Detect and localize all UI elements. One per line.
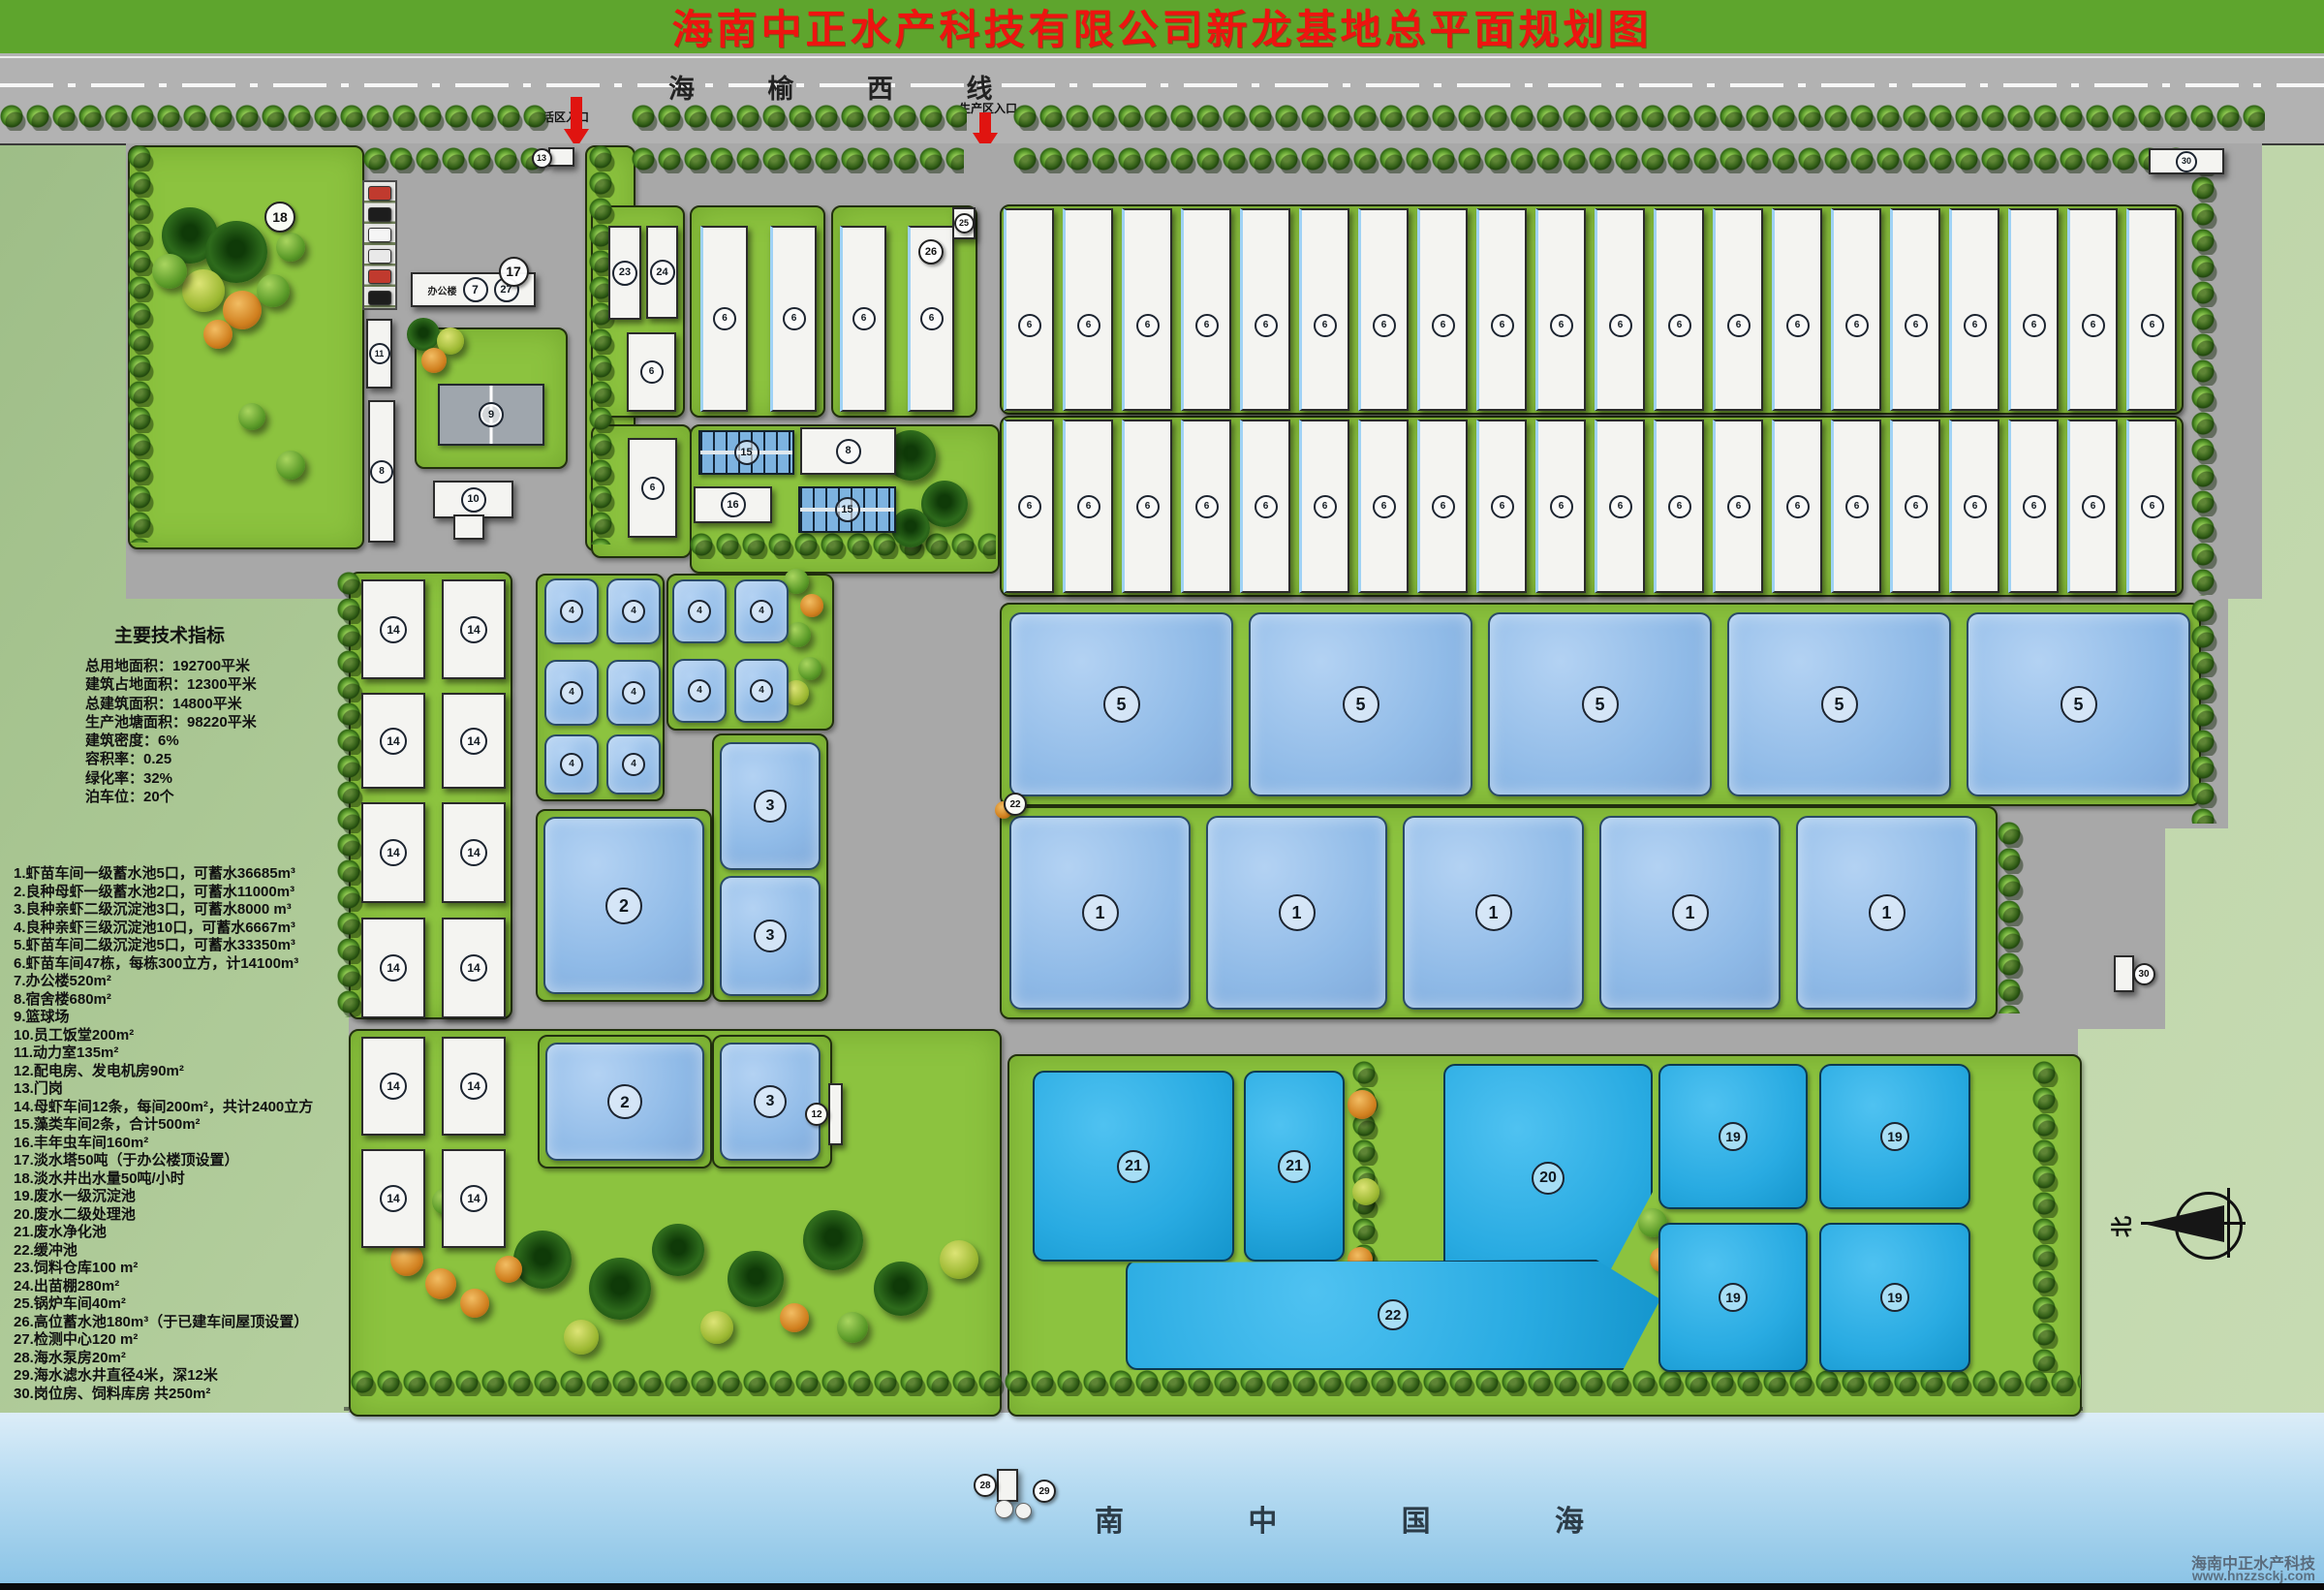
building-6: 6	[1004, 420, 1054, 593]
label-14: 14	[460, 839, 487, 866]
marker-29: 29	[1033, 1480, 1056, 1503]
label-6: 6	[1314, 314, 1337, 337]
legend-item: 17.淡水塔50吨（于办公楼顶设置）	[14, 1149, 313, 1168]
bush-tree-icon	[786, 622, 811, 647]
bush-tree-icon	[238, 403, 265, 430]
label-1: 1	[1475, 894, 1512, 931]
building-24: 24	[646, 226, 678, 319]
label-15: 15	[835, 497, 860, 522]
building-6: 6	[1240, 420, 1290, 593]
legend-list: 1.虾苗车间一级蓄水池5口，可蓄水36685m³2.良种母虾一级蓄水池2口，可蓄…	[14, 862, 313, 1400]
building-14: 14	[361, 1149, 425, 1248]
legend-item: 27.检测中心120 m²	[14, 1328, 313, 1347]
marker-12: 12	[805, 1103, 828, 1126]
palm-tree-icon	[589, 1258, 651, 1320]
legend-item: 25.锅炉车间40m²	[14, 1293, 313, 1311]
building-6: 6	[1654, 420, 1704, 593]
building-6: 6	[2126, 420, 2177, 593]
legend-item: 19.废水一级沉淀池	[14, 1185, 313, 1203]
label-6: 6	[1550, 495, 1573, 518]
title-bar: 海南中正水产科技有限公司新龙基地总平面规划图	[0, 0, 2324, 53]
label-14: 14	[460, 954, 487, 982]
label-6: 6	[1077, 495, 1100, 518]
label-4: 4	[622, 600, 645, 623]
tech-indicator-line: 总建筑面积：14800平米	[85, 693, 257, 711]
building-6: 6	[1772, 420, 1822, 593]
building-6: 6	[1595, 420, 1645, 593]
label-1: 1	[1672, 894, 1709, 931]
label-21: 21	[1278, 1150, 1311, 1183]
bush-tree-icon	[276, 233, 305, 262]
label-2: 2	[605, 888, 642, 924]
label-6: 6	[2023, 314, 2046, 337]
label-19: 19	[1719, 1122, 1748, 1151]
yellow-tree-icon	[700, 1311, 733, 1344]
label-11: 11	[369, 343, 390, 364]
building-6: 6	[1004, 208, 1054, 411]
building-6: 6	[1358, 420, 1409, 593]
label-6: 6	[1609, 314, 1632, 337]
block-row6-1	[1000, 204, 2184, 415]
label-4: 4	[560, 753, 583, 776]
label-6: 6	[1845, 314, 1869, 337]
pond-4: 4	[734, 659, 789, 723]
label-14: 14	[380, 954, 407, 982]
legend-item: 9.篮球场	[14, 1006, 313, 1024]
pond-4: 4	[606, 734, 661, 795]
building-11: 11	[366, 319, 392, 389]
pond-1: 1	[1599, 816, 1781, 1010]
yellow-tree-icon	[182, 269, 225, 312]
label-3: 3	[754, 790, 787, 823]
tree-col	[2191, 599, 2228, 824]
compass-north-label: 北	[2105, 1216, 2136, 1237]
label-14: 14	[460, 1185, 487, 1212]
label-3: 3	[754, 920, 787, 952]
office-label: 办公楼	[428, 283, 457, 297]
label-30: 30	[2176, 151, 2197, 172]
building-6: 6	[1299, 208, 1349, 411]
bush-tree-icon	[152, 254, 187, 289]
label-14: 14	[380, 728, 407, 755]
pond-19: 19	[1658, 1064, 1808, 1209]
legend-item: 21.废水净化池	[14, 1221, 313, 1239]
label-6: 6	[2023, 495, 2046, 518]
marker-26: 26	[918, 239, 944, 265]
building-6: 6	[770, 226, 817, 412]
label-14: 14	[380, 616, 407, 643]
legend-item: 14.母虾车间12条，每间200m²，共计2400立方	[14, 1096, 313, 1114]
orange-tree-icon	[495, 1256, 522, 1283]
label-3: 3	[754, 1085, 787, 1118]
legend-item: 18.淡水井出水量50吨/小时	[14, 1168, 313, 1186]
building-6: 6	[2008, 420, 2059, 593]
legend-item: 28.海水泵房20m²	[14, 1347, 313, 1365]
building-6: 6	[1535, 420, 1586, 593]
pump-house-28	[997, 1469, 1018, 1502]
building-6: 6	[1831, 208, 1881, 411]
label-6: 6	[1018, 495, 1041, 518]
label-6: 6	[2082, 495, 2105, 518]
pond-4: 4	[544, 578, 599, 644]
building-23: 23	[608, 226, 641, 320]
label-6: 6	[1491, 314, 1514, 337]
pond-19: 19	[1819, 1223, 1970, 1372]
label-6: 6	[1432, 314, 1455, 337]
label-15: 15	[734, 440, 759, 465]
pond-5: 5	[1488, 612, 1712, 796]
pond-5: 5	[1249, 612, 1472, 796]
legend-item: 5.虾苗车间二级沉淀池5口，可蓄水33350m³	[14, 934, 313, 952]
parked-car	[368, 207, 391, 222]
label-6: 6	[1195, 495, 1219, 518]
label-20: 20	[1532, 1162, 1565, 1195]
building-6: 6	[1949, 208, 1999, 411]
tech-indicator-line: 容积率：0.25	[85, 748, 257, 766]
pond-4: 4	[544, 734, 599, 795]
building-30: 30	[2149, 148, 2224, 174]
label-6: 6	[1550, 314, 1573, 337]
orange-tree-icon	[800, 594, 823, 617]
palm-tree-icon	[874, 1262, 928, 1316]
orange-tree-icon	[780, 1303, 809, 1332]
legend-item: 26.高位蓄水池180m³（于已建车间屋顶设置）	[14, 1311, 313, 1329]
legend-item: 15.藻类车间2条，合计500m²	[14, 1113, 313, 1132]
pond-2: 2	[543, 817, 704, 994]
label-6: 6	[1255, 495, 1278, 518]
building-6: 6	[840, 226, 886, 412]
yellow-tree-icon	[564, 1320, 599, 1355]
marker-22: 22	[1004, 793, 1027, 816]
pond-3: 3	[720, 742, 821, 870]
pond-4: 4	[734, 579, 789, 643]
legend-item: 8.宿舍楼680m²	[14, 988, 313, 1007]
legend-item: 23.饲料仓库100 m²	[14, 1257, 313, 1275]
legend-item: 1.虾苗车间一级蓄水池5口，可蓄水36685m³	[14, 862, 313, 881]
building-6: 6	[1181, 420, 1231, 593]
building-6: 6	[1713, 420, 1763, 593]
legend-item: 22.缓冲池	[14, 1239, 313, 1258]
highway-edge-line	[0, 56, 2324, 58]
palm-tree-icon	[513, 1231, 572, 1289]
pond-4: 4	[672, 659, 727, 723]
label-6: 6	[1373, 314, 1396, 337]
palm-tree-icon	[407, 318, 440, 351]
building-6: 6	[2008, 208, 2059, 411]
building-6: 6	[1122, 208, 1172, 411]
label-6: 6	[641, 477, 665, 500]
label-5: 5	[1821, 686, 1858, 723]
label-10: 10	[461, 487, 486, 513]
legend-item: 30.岗位房、饲料库房 共250m²	[14, 1383, 313, 1401]
orange-tree-icon	[203, 320, 232, 349]
label-8: 8	[836, 439, 861, 464]
building-6: 6	[2067, 208, 2118, 411]
compass-vertical-line	[2227, 1188, 2230, 1258]
label-9: 9	[479, 402, 504, 427]
label-21: 21	[1117, 1150, 1150, 1183]
company-website: www.hnzzsckj.com	[2170, 1568, 2315, 1583]
highway-center-line	[0, 83, 2324, 87]
building-6: 6	[1476, 208, 1527, 411]
yellow-tree-icon	[1352, 1178, 1379, 1205]
label-5: 5	[2061, 686, 2097, 723]
living-entrance-arrow	[571, 97, 582, 130]
legend-item: 7.办公楼520m²	[14, 970, 313, 988]
label-19: 19	[1719, 1283, 1748, 1312]
palm-tree-icon	[652, 1224, 704, 1276]
building-6: 6	[1890, 208, 1940, 411]
building-6: 6	[1949, 420, 1999, 593]
building-10: 10	[433, 481, 513, 518]
label-6: 6	[2082, 314, 2105, 337]
legend-item: 3.良种亲虾二级沉淀池3口，可蓄水8000 m³	[14, 898, 313, 917]
algae-workshop-15: 15	[798, 486, 896, 533]
building-6: 6	[1181, 208, 1231, 411]
production-entrance-arrow	[979, 112, 991, 134]
label-16: 16	[721, 492, 746, 517]
tech-indicator-line: 绿化率：32%	[85, 767, 257, 786]
label-6: 6	[1373, 495, 1396, 518]
building-6: 6	[1772, 208, 1822, 411]
tech-indicator-line: 建筑占地面积：12300平米	[85, 673, 257, 692]
building-6: 6	[628, 438, 677, 538]
label-23: 23	[612, 261, 637, 286]
label-4: 4	[622, 753, 645, 776]
marker-13: 13	[532, 148, 552, 169]
site-plan-canvas: 海南中正水产科技有限公司新龙基地总平面规划图 海 榆 西 线 生活区入口 生产区…	[0, 0, 2324, 1590]
building-14: 14	[442, 1149, 506, 1248]
orange-tree-icon	[390, 1243, 423, 1276]
parked-car	[368, 291, 391, 305]
legend-item: 6.虾苗车间47栋，每栋300立方，计14100m³	[14, 952, 313, 971]
building-14: 14	[442, 802, 506, 903]
label-19: 19	[1880, 1122, 1909, 1151]
bush-tree-icon	[276, 451, 305, 480]
building-6: 6	[1476, 420, 1527, 593]
page-title: 海南中正水产科技有限公司新龙基地总平面规划图	[671, 0, 1652, 56]
pond-21: 21	[1244, 1071, 1345, 1262]
building-14: 14	[361, 1037, 425, 1136]
tree-col	[1998, 822, 2034, 1013]
label-1: 1	[1279, 894, 1316, 931]
orange-tree-icon	[425, 1268, 456, 1299]
building-14: 14	[361, 918, 425, 1018]
building-6: 6	[1240, 208, 1290, 411]
gate-house-13	[548, 147, 574, 167]
label-14: 14	[380, 1185, 407, 1212]
bush-tree-icon	[837, 1312, 868, 1343]
tree-row	[1013, 105, 2265, 143]
tree-col	[2191, 150, 2228, 596]
pond-4: 4	[606, 578, 661, 644]
palm-tree-icon	[803, 1210, 863, 1270]
building-6: 6	[1595, 208, 1645, 411]
tree-row	[0, 105, 550, 143]
tree-row	[632, 147, 964, 186]
label-6: 6	[1609, 495, 1632, 518]
label-6: 6	[1136, 314, 1160, 337]
sea-name: 南 中 国 海	[1095, 1497, 1642, 1540]
marker-17: 17	[499, 257, 529, 287]
label-8: 8	[370, 460, 393, 483]
label-14: 14	[460, 616, 487, 643]
label-6: 6	[1314, 495, 1337, 518]
label-1: 1	[1082, 894, 1119, 931]
building-6: 6	[1535, 208, 1586, 411]
orange-tree-icon	[460, 1289, 489, 1318]
label-6: 6	[1668, 314, 1691, 337]
label-6: 6	[1255, 314, 1278, 337]
label-6: 6	[1786, 314, 1810, 337]
bush-tree-icon	[257, 274, 290, 307]
legend-item: 16.丰年虫车间160m²	[14, 1132, 313, 1150]
label-4: 4	[560, 600, 583, 623]
label-6: 6	[1964, 495, 1987, 518]
legend-item: 2.良种母虾一级蓄水池2口，可蓄水11000m³	[14, 881, 313, 899]
label-5: 5	[1343, 686, 1379, 723]
label-4: 4	[688, 600, 711, 623]
bush-tree-icon	[798, 657, 821, 680]
building-6: 6	[1063, 420, 1113, 593]
legend-item: 10.员工饭堂200m²	[14, 1024, 313, 1043]
building-6: 6	[1299, 420, 1349, 593]
algae-workshop-15: 15	[698, 430, 794, 475]
marker-25: 25	[954, 213, 975, 234]
yellow-tree-icon	[940, 1240, 978, 1279]
palm-tree-icon	[891, 509, 930, 547]
building-6: 6	[1417, 420, 1468, 593]
tech-indicator-line: 总用地面积：192700平米	[85, 655, 257, 673]
pond-3: 3	[720, 876, 821, 996]
filter-well-29	[995, 1500, 1013, 1518]
pond-19: 19	[1819, 1064, 1970, 1209]
label-5: 5	[1582, 686, 1619, 723]
parked-car	[368, 249, 391, 264]
label-6: 6	[1195, 314, 1219, 337]
tree-row	[632, 105, 967, 143]
label-6: 6	[852, 307, 876, 330]
pond-1: 1	[1403, 816, 1584, 1010]
building-6: 6	[1654, 208, 1704, 411]
building-14: 14	[442, 918, 506, 1018]
tech-indicators-heading: 主要技术指标	[114, 621, 225, 647]
block-row6-2	[1000, 416, 2184, 597]
tree-col	[337, 572, 364, 1017]
label-6: 6	[1786, 495, 1810, 518]
tree-col	[589, 145, 628, 545]
pond-4: 4	[606, 660, 661, 726]
building-6: 6	[2067, 420, 2118, 593]
legend-item: 12.配电房、发电机房90m²	[14, 1060, 313, 1078]
parked-car	[368, 228, 391, 242]
marker-28: 28	[974, 1474, 997, 1497]
label-14: 14	[460, 1073, 487, 1100]
tree-col	[2032, 1061, 2071, 1373]
label-6: 6	[1432, 495, 1455, 518]
label-6: 6	[1964, 314, 1987, 337]
label-6: 6	[2141, 314, 2164, 337]
label-6: 6	[1136, 495, 1160, 518]
label-6: 6	[783, 307, 806, 330]
label-1: 1	[1869, 894, 1906, 931]
label-6: 6	[640, 360, 664, 384]
pond-2: 2	[545, 1043, 704, 1161]
pond-5: 5	[1967, 612, 2190, 796]
building-6: 6	[627, 332, 676, 412]
building-6: 6	[1713, 208, 1763, 411]
label-5: 5	[1103, 686, 1140, 723]
building-6: 6	[1358, 208, 1409, 411]
marker-30: 30	[2133, 963, 2155, 985]
label-4: 4	[622, 681, 645, 704]
building-6: 6	[1417, 208, 1468, 411]
label-24: 24	[650, 260, 675, 285]
building-16: 16	[694, 486, 772, 523]
pond-4: 4	[544, 660, 599, 726]
label-6: 6	[1727, 314, 1751, 337]
pond-19: 19	[1658, 1223, 1808, 1372]
label-14: 14	[380, 839, 407, 866]
label-6: 6	[1018, 314, 1041, 337]
building-6: 6	[2126, 208, 2177, 411]
label-6: 6	[1905, 495, 1928, 518]
label-6: 6	[1668, 495, 1691, 518]
tree-row	[1013, 147, 2180, 186]
label-6: 6	[920, 307, 944, 330]
building-6: 6	[1122, 420, 1172, 593]
building-14: 14	[442, 579, 506, 679]
legend-item: 20.废水二级处理池	[14, 1203, 313, 1222]
label-4: 4	[750, 600, 773, 623]
legend-item: 29.海水滤水井直径4米，深12米	[14, 1364, 313, 1383]
label-4: 4	[688, 679, 711, 702]
label-6: 6	[1077, 314, 1100, 337]
palm-tree-icon	[728, 1251, 784, 1307]
building-6: 6	[1063, 208, 1113, 411]
building-8: 8	[368, 400, 395, 543]
building-8: 8	[800, 427, 896, 475]
label-6: 6	[1727, 495, 1751, 518]
label-6: 6	[1905, 314, 1928, 337]
filter-well-29	[1015, 1503, 1032, 1519]
building-12	[828, 1083, 843, 1145]
tree-row	[351, 1370, 2081, 1413]
orange-tree-icon	[421, 348, 447, 373]
legend-item: 13.门岗	[14, 1077, 313, 1096]
legend-item: 11.动力室135m²	[14, 1042, 313, 1060]
tree-row	[690, 533, 996, 568]
office-marker-7: 7	[463, 277, 488, 302]
building-10-wing	[453, 514, 484, 540]
building-30	[2114, 955, 2134, 992]
building-6: 6	[1890, 420, 1940, 593]
parked-car	[368, 269, 391, 284]
building-14: 14	[442, 1037, 506, 1136]
label-19: 19	[1880, 1283, 1909, 1312]
label-6: 6	[2141, 495, 2164, 518]
tech-indicators-list: 总用地面积：192700平米建筑占地面积：12300平米总建筑面积：14800平…	[85, 655, 257, 804]
building-14: 14	[361, 802, 425, 903]
pond-22: 22	[1126, 1260, 1660, 1370]
building-14: 14	[442, 693, 506, 789]
label-14: 14	[460, 728, 487, 755]
legend-item: 24.出苗棚280m²	[14, 1275, 313, 1294]
building-14: 14	[361, 579, 425, 679]
label-22: 22	[1378, 1299, 1409, 1330]
compass-arrow	[2143, 1205, 2224, 1242]
pond-5: 5	[1727, 612, 1951, 796]
